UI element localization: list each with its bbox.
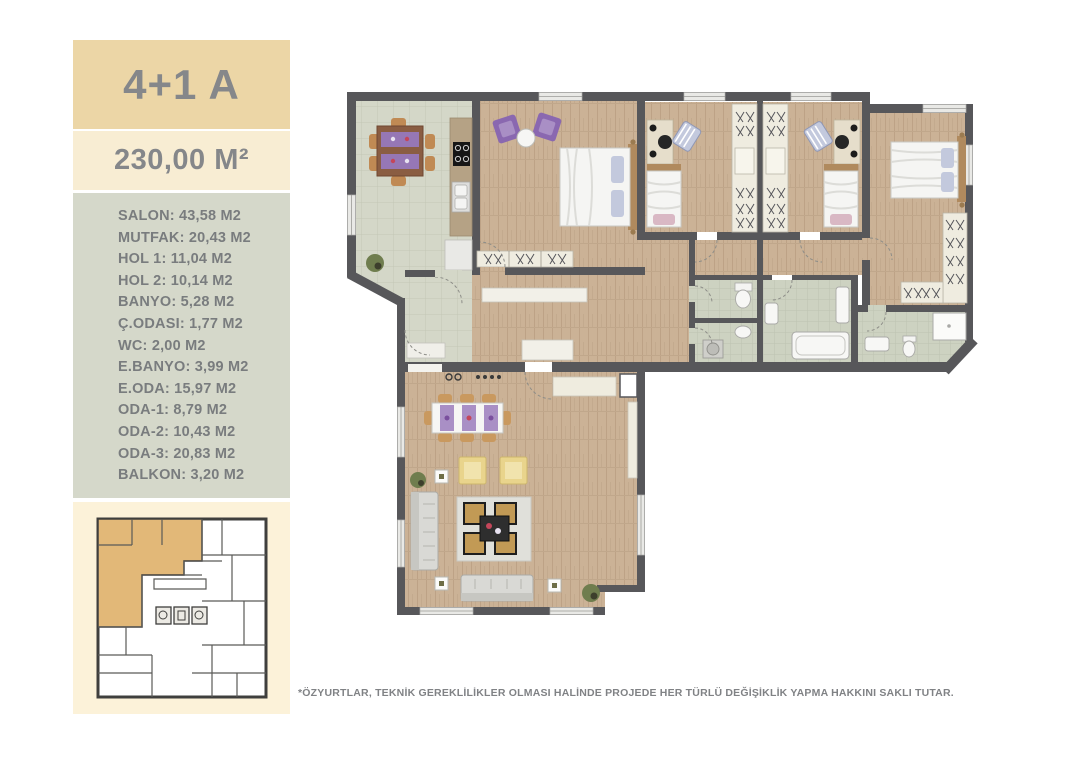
room-line: BALKON: 3,20 M2 xyxy=(118,465,282,487)
keyplan-svg xyxy=(92,515,272,701)
kitchen-cabinet xyxy=(445,240,472,270)
brochure-page: 4+1 A 230,00 M² SALON: 43,58 M2 MUTFAK: … xyxy=(0,0,1078,768)
floorplan-svg xyxy=(345,90,985,625)
wall-cabinet-edge xyxy=(408,364,442,372)
room-line: E.ODA: 15,97 M2 xyxy=(118,379,282,401)
unit-type-label: 4+1 A xyxy=(123,61,240,109)
pillow xyxy=(611,190,624,217)
room-line: SALON: 43,58 M2 xyxy=(118,206,282,228)
salon-sideboard-top xyxy=(553,377,616,396)
room-line: E.BANYO: 3,99 M2 xyxy=(118,357,282,379)
room-line: BANYO: 5,28 M2 xyxy=(118,292,282,314)
unit-total-area: 230,00 M² xyxy=(73,131,290,190)
room-line: HOL 2: 10,14 M2 xyxy=(118,271,282,293)
plant xyxy=(410,472,426,488)
bed-headboard xyxy=(647,164,681,171)
bath-counter xyxy=(836,287,849,323)
pillow xyxy=(611,156,624,183)
hall-console xyxy=(522,340,573,360)
coffee-table xyxy=(480,516,509,541)
sofa-horizontal xyxy=(461,575,533,601)
room-line: ODA-1: 8,79 M2 xyxy=(118,400,282,422)
desk-chair xyxy=(658,135,672,149)
pillow xyxy=(830,214,852,225)
bed-headboard xyxy=(824,164,858,171)
balcony-nook xyxy=(620,374,637,397)
room-line: Ç.ODASI: 1,77 M2 xyxy=(118,314,282,336)
toilet xyxy=(903,341,915,357)
shoe-cabinet xyxy=(407,343,445,358)
desk-chair xyxy=(835,135,849,149)
pillow xyxy=(941,148,954,168)
laundry-sink xyxy=(735,326,751,338)
hol2-floor-upper xyxy=(645,240,862,275)
disclaimer-text: *ÖZYURTLAR, TEKNİK GEREKLİLİKLER OLMASI … xyxy=(298,687,898,699)
plant xyxy=(366,254,384,272)
kitchen-counter xyxy=(450,118,472,236)
bath-sink xyxy=(765,303,778,324)
room-area-list: SALON: 43,58 M2 MUTFAK: 20,43 M2 HOL 1: … xyxy=(73,193,290,498)
sidebar: 4+1 A 230,00 M² SALON: 43,58 M2 MUTFAK: … xyxy=(73,40,290,714)
salon-sideboard-right xyxy=(628,402,637,478)
room-line: ODA-2: 10,43 M2 xyxy=(118,422,282,444)
pillow xyxy=(941,172,954,192)
side-table-round xyxy=(517,129,535,147)
toilet xyxy=(736,290,751,308)
sofa-vertical xyxy=(411,492,438,570)
unit-total-area-label: 230,00 M² xyxy=(114,144,249,177)
plant xyxy=(582,584,600,602)
room-line: WC: 2,00 M2 xyxy=(118,336,282,358)
pillow xyxy=(653,214,675,225)
room-line: ODA-3: 20,83 M2 xyxy=(118,444,282,466)
keyplan-elevator-core xyxy=(156,607,207,624)
keyplan-block xyxy=(73,502,290,714)
bath-sink xyxy=(865,337,889,351)
room-line: HOL 1: 11,04 M2 xyxy=(118,249,282,271)
unit-type-header: 4+1 A xyxy=(73,40,290,129)
hall-console xyxy=(482,288,587,302)
wardrobe xyxy=(943,213,967,303)
room-line: MUTFAK: 20,43 M2 xyxy=(118,228,282,250)
closet-strip xyxy=(477,251,573,267)
